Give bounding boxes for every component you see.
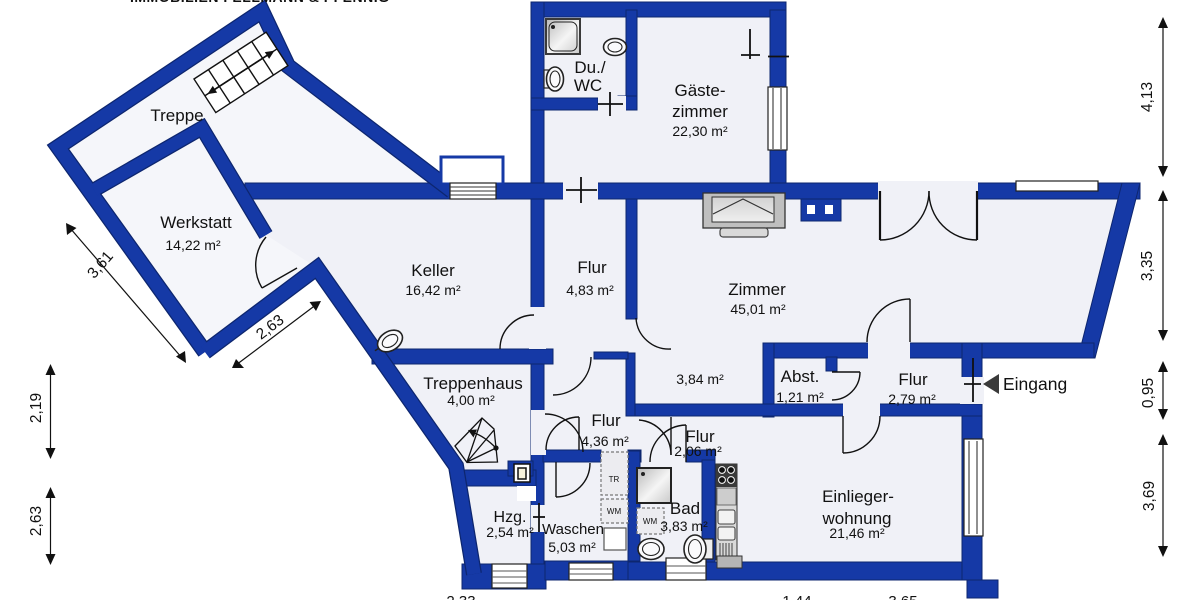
svg-text:WM: WM (607, 507, 622, 516)
svg-text:Einlieger-: Einlieger- (822, 487, 894, 506)
svg-text:3,35: 3,35 (1139, 251, 1156, 281)
svg-text:21,46 m²: 21,46 m² (829, 525, 885, 541)
svg-text:2,19: 2,19 (28, 393, 45, 423)
svg-text:3,69: 3,69 (1141, 481, 1158, 511)
svg-text:4,36 m²: 4,36 m² (581, 433, 629, 449)
svg-text:Flur: Flur (591, 411, 621, 430)
svg-text:0,95: 0,95 (1140, 378, 1157, 408)
svg-text:Treppenhaus: Treppenhaus (423, 374, 523, 393)
svg-text:5,03 m²: 5,03 m² (548, 539, 596, 555)
svg-text:IMMOBILIEN FELLMANN & PFENNIG: IMMOBILIEN FELLMANN & PFENNIG (130, 0, 390, 5)
svg-text:2,63: 2,63 (28, 506, 45, 536)
svg-text:Zimmer: Zimmer (728, 280, 786, 299)
svg-text:4,00 m²: 4,00 m² (447, 392, 495, 408)
svg-text:16,42 m²: 16,42 m² (405, 282, 461, 298)
svg-text:1,21 m²: 1,21 m² (776, 389, 824, 405)
svg-text:Flur: Flur (577, 258, 607, 277)
svg-text:Du./: Du./ (574, 58, 605, 77)
svg-text:TR: TR (609, 475, 620, 484)
svg-text:4,13: 4,13 (1139, 82, 1156, 112)
svg-text:2,06 m²: 2,06 m² (674, 443, 722, 459)
svg-text:Abst.: Abst. (781, 367, 820, 386)
svg-text:Bad: Bad (670, 499, 700, 518)
svg-text:45,01 m²: 45,01 m² (730, 301, 786, 317)
svg-text:22,30 m²: 22,30 m² (672, 123, 728, 139)
svg-text:3,84 m²: 3,84 m² (676, 371, 724, 387)
svg-text:Keller: Keller (411, 261, 455, 280)
svg-text:3,65: 3,65 (888, 593, 917, 600)
svg-text:4,83 m²: 4,83 m² (566, 282, 614, 298)
svg-text:3,83 m²: 3,83 m² (660, 518, 708, 534)
svg-text:Waschen: Waschen (542, 521, 604, 538)
svg-text:Treppe: Treppe (150, 106, 203, 125)
svg-text:Gäste-: Gäste- (674, 81, 725, 100)
svg-text:2,79 m²: 2,79 m² (888, 391, 936, 407)
svg-text:2,54 m²: 2,54 m² (486, 524, 534, 540)
svg-text:WC: WC (574, 76, 602, 95)
svg-text:1,44: 1,44 (782, 593, 811, 600)
svg-text:14,22 m²: 14,22 m² (165, 237, 221, 253)
svg-text:zimmer: zimmer (672, 102, 728, 121)
svg-text:Eingang: Eingang (1003, 374, 1067, 394)
svg-text:Werkstatt: Werkstatt (160, 213, 232, 232)
svg-text:Flur: Flur (898, 370, 928, 389)
svg-text:2,33: 2,33 (446, 593, 475, 600)
svg-text:WM: WM (643, 517, 658, 526)
